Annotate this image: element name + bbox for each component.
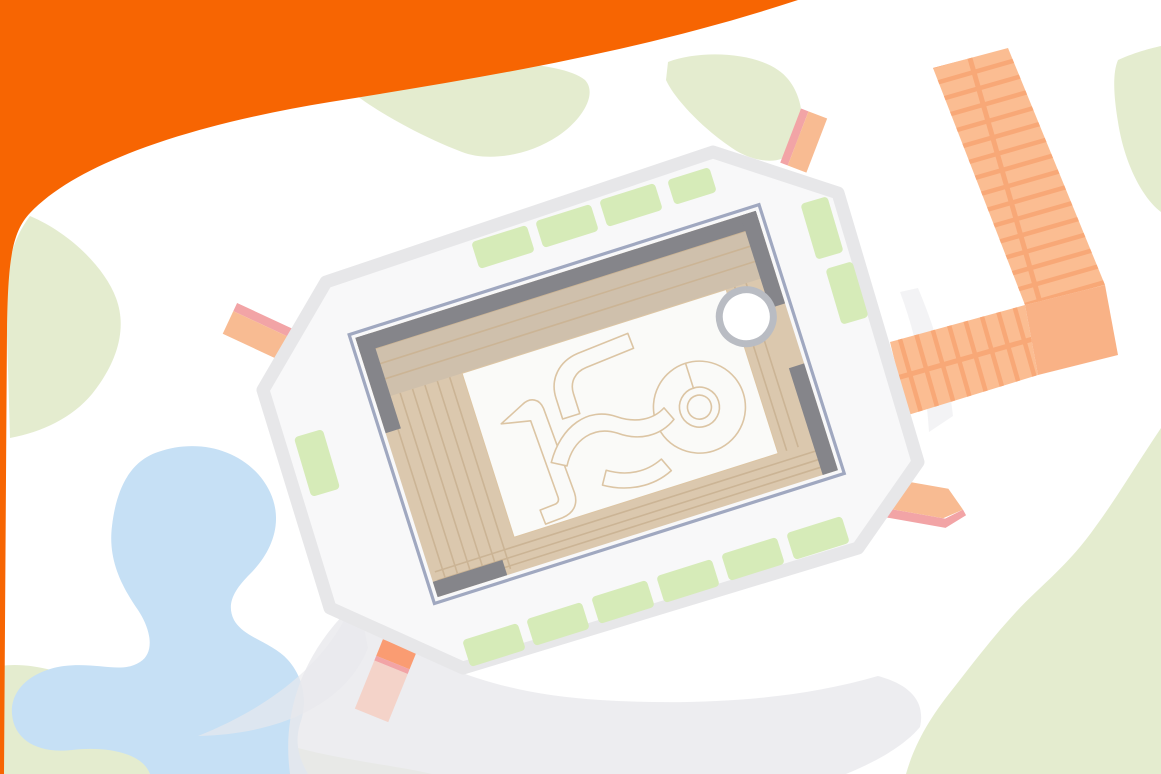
site-plan-canvas [0,0,1161,774]
site-plan-svg [0,0,1161,774]
